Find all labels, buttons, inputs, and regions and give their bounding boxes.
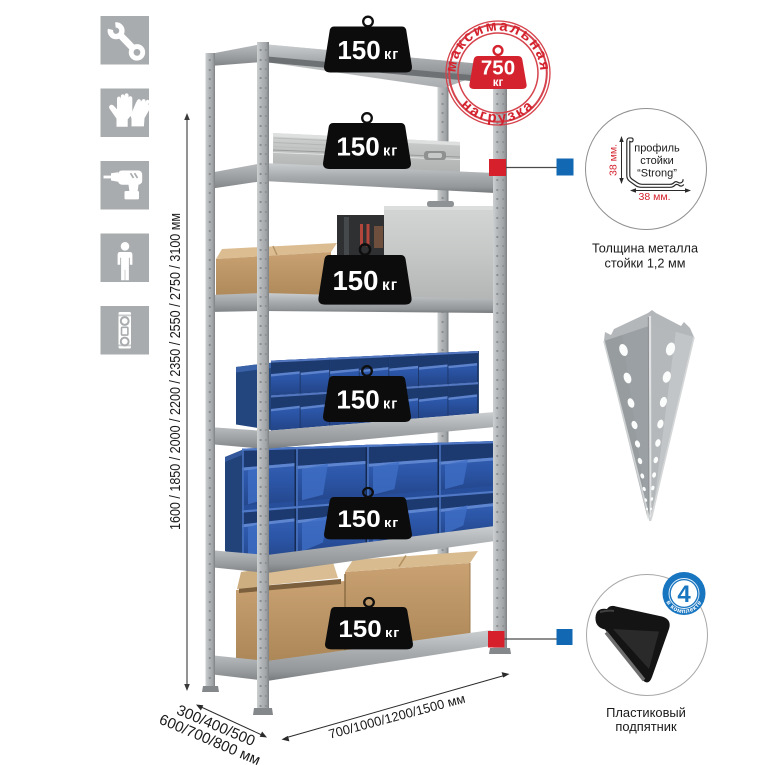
svg-text:1600 / 1850 / 2000 / 2200 / 23: 1600 / 1850 / 2000 / 2200 / 2350 / 2550 … <box>168 213 184 530</box>
svg-text:подпятник: подпятник <box>615 719 677 734</box>
svg-text:профиль: профиль <box>634 143 680 155</box>
svg-text:700/1000/1200/1500 мм: 700/1000/1200/1500 мм <box>327 691 467 742</box>
svg-text:стойки: стойки <box>640 155 674 167</box>
svg-text:“Strong”: “Strong” <box>637 168 677 180</box>
svg-text:38 мм.: 38 мм. <box>608 144 620 176</box>
svg-text:кг: кг <box>493 77 504 89</box>
svg-text:38 мм.: 38 мм. <box>639 191 671 203</box>
svg-text:стойки 1,2 мм: стойки 1,2 мм <box>605 257 686 271</box>
svg-text:Толщина металла: Толщина металла <box>592 242 699 256</box>
svg-text:Пластиковый: Пластиковый <box>606 705 686 720</box>
svg-text:4: 4 <box>677 581 691 608</box>
